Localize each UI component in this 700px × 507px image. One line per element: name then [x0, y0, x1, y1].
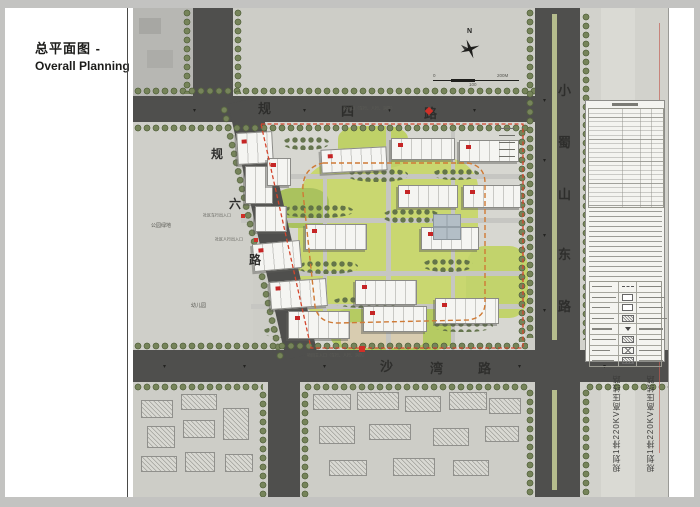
main-entrance-note: 项目主入口（车行、人行、消防） [307, 354, 367, 358]
scale-tick: 0 [433, 74, 436, 79]
scale-bar-line [433, 80, 519, 81]
lane-arrow-icon: ▾ [543, 158, 546, 164]
building [463, 185, 521, 208]
legend-row [590, 346, 661, 357]
building [435, 298, 499, 324]
lane-arrow-icon: ▾ [303, 108, 306, 114]
tree-cluster [433, 168, 479, 180]
main-entrance-marker [359, 346, 365, 352]
street-trees [258, 390, 268, 497]
existing-building [433, 428, 469, 446]
road-name-west: 六 [229, 198, 241, 210]
legend-symbol-box [622, 304, 633, 311]
vehicle-gate-marker [241, 214, 245, 218]
screenshot-frame: 总平面图 - Overall Planning [0, 0, 700, 507]
existing-building [405, 396, 441, 412]
page-title-en: Overall Planning [35, 59, 130, 73]
road-east-median [552, 390, 557, 490]
power-line-label: 规划1排220KV高压线路 [611, 360, 622, 472]
existing-building [181, 394, 217, 410]
existing-block-b [147, 50, 173, 68]
existing-building [183, 420, 215, 438]
legend-symbol-crossbox [622, 347, 634, 354]
street-trees [525, 388, 535, 497]
building [267, 158, 291, 186]
road-east-median [552, 14, 557, 340]
road-name-east: 山 [558, 188, 571, 201]
street-trees [303, 382, 528, 392]
building-number-tag [242, 139, 247, 143]
street-trees [182, 8, 192, 94]
scale-bar: 0 100 200M [433, 74, 519, 86]
tree-cluster [298, 260, 358, 274]
legend-symbol-hatch [622, 315, 634, 322]
page-title-block: 总平面图 - Overall Planning [35, 38, 130, 73]
vehicle-gate-note: 社区车行出入口 [203, 214, 231, 218]
building-number-tag [295, 316, 300, 320]
facility-label [499, 128, 515, 129]
existing-building [485, 426, 519, 442]
facility-label [499, 149, 515, 150]
road-south-vertical [268, 382, 300, 497]
building-number-tag [405, 190, 410, 194]
building [355, 280, 417, 305]
road-name-south: 湾 [430, 362, 443, 375]
lane-arrow-icon: ▾ [543, 98, 546, 104]
legend-row [590, 324, 661, 335]
lane-arrow-icon: ▾ [163, 364, 166, 370]
tree-cluster [383, 208, 439, 224]
power-line-label: 规划1排220KV高压线路 [645, 360, 656, 472]
building [391, 138, 455, 160]
lane-arrow-icon: ▾ [543, 233, 546, 239]
building [305, 224, 367, 250]
park-green-label: 公园绿地 [151, 224, 171, 229]
compass-rose-icon [459, 38, 481, 60]
building-number-tag [370, 311, 375, 315]
pedestrian-gate-marker [254, 238, 258, 242]
north-label: N [467, 28, 472, 35]
legend-symbol-dashline [622, 286, 634, 287]
road-name-east: 路 [558, 300, 571, 313]
building-number-tag [362, 285, 367, 289]
lane-arrow-icon: ▾ [193, 108, 196, 114]
site-plan-map: 规 四 路 小 蜀 山 东 路 沙 湾 路 规 六 路 ▾ ▾ ▾ ▾ ▾ ▾ … [133, 8, 669, 497]
page-title-zh: 总平面图 - [35, 38, 130, 57]
tree-cluster [423, 258, 473, 272]
existing-building [147, 426, 175, 448]
street-trees [133, 123, 531, 133]
legend-table [589, 281, 662, 367]
street-trees [133, 86, 535, 96]
road-name-south: 沙 [380, 360, 393, 373]
presentation-page: 总平面图 - Overall Planning [5, 8, 694, 497]
road-name-west: 规 [211, 148, 223, 160]
building [363, 306, 427, 332]
street-trees [233, 8, 243, 94]
road-name-west: 路 [249, 254, 261, 266]
building-number-tag [312, 229, 317, 233]
legend-symbol-hatch [622, 357, 634, 364]
legend-row [590, 335, 661, 346]
existing-building [393, 458, 435, 476]
road-name-south: 路 [478, 362, 491, 375]
sports-court [433, 214, 461, 240]
building-number-tag [271, 163, 276, 167]
tree-cluster [283, 136, 329, 150]
building-number-tag [470, 190, 475, 194]
building [398, 185, 458, 208]
existing-building [489, 398, 521, 414]
building-number-tag [398, 143, 403, 147]
legend-row [590, 303, 661, 314]
existing-building [225, 454, 253, 472]
pedestrian-gate-note: 社区人行出入口 [215, 238, 243, 242]
scale-tick: 200M [497, 74, 508, 79]
legend-row [590, 314, 661, 325]
building-number-tag [466, 145, 471, 149]
building-number-tag [275, 286, 280, 290]
road-name-east: 蜀 [558, 136, 571, 149]
road-name-north: 规 [258, 102, 271, 115]
existing-building [449, 392, 487, 410]
existing-building [313, 394, 351, 410]
facility-label [499, 156, 515, 157]
scale-tick: 100 [469, 83, 477, 88]
legend-row [590, 293, 661, 304]
sidebar-divider [127, 8, 128, 497]
lane-arrow-icon: ▾ [243, 364, 246, 370]
panel-title-bar [612, 103, 638, 106]
building-number-tag [442, 303, 447, 307]
indicator-panel [585, 100, 665, 362]
street-trees [133, 382, 263, 392]
lane-arrow-icon: ▾ [543, 308, 546, 314]
existing-building [185, 452, 215, 472]
building [320, 146, 387, 173]
secondary-entrance-note: 次入口（车行、人行、消防） [343, 107, 395, 111]
legend-row [590, 282, 661, 293]
existing-building [141, 456, 177, 472]
road-top-vertical [193, 8, 233, 98]
road-name-east: 小 [558, 84, 571, 97]
existing-building [357, 392, 399, 410]
street-trees [133, 341, 528, 351]
design-notes [589, 211, 662, 277]
existing-block-a [139, 18, 161, 34]
building-number-tag [328, 154, 333, 158]
existing-building [329, 460, 367, 476]
existing-building [453, 460, 489, 476]
lane-arrow-icon: ▾ [323, 364, 326, 370]
building [255, 206, 287, 232]
existing-building [223, 408, 249, 440]
existing-building [141, 400, 173, 418]
road-name-east: 东 [558, 248, 571, 261]
legend-symbol-hatch [622, 336, 634, 343]
lane-arrow-icon: ▾ [518, 364, 521, 370]
kindergarten-label: 幼儿园 [191, 304, 206, 309]
tree-cluster [283, 204, 353, 218]
building [288, 311, 350, 339]
existing-building [369, 424, 411, 440]
lane-arrow-icon: ▾ [473, 108, 476, 114]
street-trees [300, 390, 310, 497]
building-number-tag [258, 248, 263, 252]
facility-label [499, 135, 515, 136]
existing-building [319, 426, 355, 444]
facility-label [499, 142, 515, 143]
economic-indicator-table [588, 108, 664, 208]
street-trees [581, 388, 591, 495]
legend-symbol-box [622, 294, 633, 301]
building [269, 278, 328, 310]
legend-symbol-triangle [625, 327, 631, 331]
